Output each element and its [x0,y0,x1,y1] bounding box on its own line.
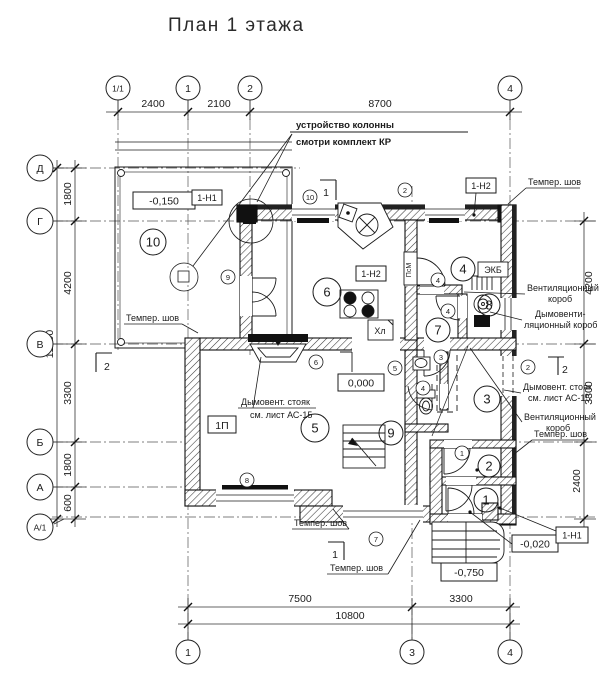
flue-note-right: Дымовент. стояк см. лист АС-15 [504,382,592,403]
window-top-2 [425,204,465,223]
svg-text:3: 3 [483,392,490,407]
svg-text:Темпер. шов: Темпер. шов [294,518,347,528]
svg-text:короб: короб [548,294,572,304]
axis-bubble-top-1-1: 1/1 [106,76,130,100]
room-circle-3: 3 [474,386,500,412]
window-bottom-1 [216,485,294,507]
svg-text:1-Н1: 1-Н1 [197,193,217,203]
tag-ekb: ЭКБ [478,262,508,277]
marker-d6: 6 [309,355,323,369]
svg-text:4: 4 [507,83,513,95]
terrace-double-door-leaf1 [252,278,276,302]
windows [216,204,517,524]
washbasin [413,357,430,370]
svg-text:Темпер. шов: Темпер. шов [330,563,383,573]
svg-text:7: 7 [434,323,441,338]
dim-top-1: 2400 [141,98,165,110]
room-circle-4: 4 [451,257,475,281]
level-terrace: -0,150 [133,192,195,209]
svg-text:см. лист АС-15: см. лист АС-15 [250,410,312,420]
marker-d4b: 4 [441,304,455,318]
future-opening-right [500,356,517,396]
svg-text:смотри комплект КР: смотри комплект КР [296,137,392,148]
svg-text:1/1: 1/1 [112,84,124,94]
svg-text:4: 4 [436,276,440,285]
axis-bubble-bottom-3: 3 [400,640,424,664]
svg-text:2: 2 [403,186,407,195]
svg-text:А: А [36,482,43,494]
svg-text:10: 10 [306,193,314,202]
terrace-double-door-leaf2 [252,292,276,316]
svg-text:1-Н2: 1-Н2 [471,181,491,191]
tag-n1-terrace: 1-Н1 [192,190,222,205]
dim-bottom-1: 7500 [288,593,312,605]
svg-text:1: 1 [482,493,489,508]
svg-text:1-Н1: 1-Н1 [562,531,582,541]
fireplace-flue [248,334,308,362]
section-1-bottom: 1 [328,542,344,561]
svg-text:-0,750: -0,750 [454,567,484,579]
svg-text:4: 4 [421,384,425,393]
vent-duct-note-upper: Вентиляционный короб [464,283,599,304]
tag-fridge: Хл [374,326,385,336]
axis-bubble-left-b: Б [27,429,64,455]
axis-bubble-left-d: Д [27,155,64,181]
seam-note-top-right: Темпер. шов [508,177,581,204]
svg-text:Дымовенти-: Дымовенти- [535,309,586,319]
marker-w8: 8 [240,473,254,487]
svg-text:10: 10 [146,235,160,250]
hob [340,290,378,318]
svg-text:7: 7 [374,535,378,544]
svg-text:Вентиляционный: Вентиляционный [527,283,599,293]
svg-text:ляционный короб: ляционный короб [524,320,597,330]
svg-text:Г: Г [37,216,43,228]
level-ground: 0,000 [338,352,384,391]
axis-bubble-top-2: 2 [238,76,262,100]
page-title: План 1 этажа [168,15,305,36]
svg-text:6: 6 [323,285,330,300]
svg-text:Б: Б [37,437,44,449]
svg-text:В: В [36,339,43,351]
dim-left-1: 1800 [62,182,74,206]
svg-text:1П: 1П [215,420,228,432]
svg-text:А/1: А/1 [34,523,47,533]
kitchen-sink-unit [338,203,393,249]
svg-text:4: 4 [459,262,466,277]
svg-text:4: 4 [507,647,513,659]
floor-plan-drawing: План 1 этажа [0,0,616,689]
dim-left-4: 1800 [62,453,74,477]
svg-text:Темпер. шов: Темпер. шов [528,177,581,187]
marker-d4a: 4 [431,273,445,287]
dim-left-5: 600 [62,494,74,512]
svg-text:4: 4 [446,307,450,316]
svg-text:2: 2 [562,364,568,376]
svg-text:-0,150: -0,150 [149,196,179,208]
marker-w10: 10 [303,190,317,204]
flue-note-room5: Дымовент. стояк см. лист АС-15 [238,357,316,420]
window-right [500,298,517,330]
seam-note-terrace: Темпер. шов [124,313,198,333]
dim-left-2: 4200 [62,271,74,295]
svg-text:3: 3 [439,353,443,362]
room-circle-6: 6 [313,278,341,306]
seam-note-bottom-center: Темпер. шов [327,520,420,574]
section-1-top: 1 [320,180,336,200]
level-porch: -0,750 [441,563,497,581]
svg-text:1: 1 [460,449,464,458]
svg-text:1: 1 [323,187,329,199]
dim-bottom-total: 10800 [335,610,364,622]
svg-text:1-Н2: 1-Н2 [361,269,381,279]
svg-text:0,000: 0,000 [348,378,374,390]
svg-text:Дымовент. стояк: Дымовент. стояк [523,382,592,392]
svg-text:2: 2 [247,83,253,95]
svg-text:8: 8 [245,476,249,485]
svg-text:9: 9 [226,273,230,282]
room-circle-2: 2 [475,455,500,477]
axis-bubble-bottom-4: 4 [498,640,522,664]
svg-text:1: 1 [332,549,338,561]
svg-text:8: 8 [485,298,492,313]
window-top-1 [292,204,335,223]
room-circle-10: 10 [140,229,166,255]
tag-sink-unit: ПсМ [406,263,413,278]
svg-text:5: 5 [393,364,397,373]
axis-bubble-left-v: В [27,331,64,357]
room-circle-8: 8 [478,294,500,316]
floor-plan-sheet: План 1 этажа [0,0,616,689]
axis-bubble-top-1: 1 [176,76,200,100]
dim-left-3: 3300 [62,381,74,405]
marker-w7: 7 [369,532,383,546]
tag-n2-room6: 1-Н2 [356,266,386,281]
marker-d4c: 4 [416,381,430,395]
svg-text:устройство колонны: устройство колонны [296,120,394,131]
svg-text:3: 3 [409,647,415,659]
dim-top-3: 8700 [368,98,392,110]
svg-text:Дымовент. стояк: Дымовент. стояк [241,397,310,407]
column-note: устройство колонны смотри комплект КР [290,120,468,148]
svg-text:ЭКБ: ЭКБ [484,265,502,275]
svg-text:Темпер. шов: Темпер. шов [534,429,587,439]
svg-text:2: 2 [526,363,530,372]
tag-p1: 1П [208,416,236,433]
svg-text:Д: Д [36,163,43,175]
marker-d9: 9 [221,270,235,284]
axis-bubble-bottom-1: 1 [176,640,200,664]
marker-w2r: 2 [521,360,535,374]
svg-text:9: 9 [387,426,394,441]
svg-text:2: 2 [104,361,110,373]
svg-text:см. лист АС-15: см. лист АС-15 [528,393,590,403]
svg-text:Вентиляционный: Вентиляционный [524,412,596,422]
section-2-right: 2 [548,357,568,376]
dim-top-2: 2100 [207,98,231,110]
svg-text:-0,020: -0,020 [520,539,550,551]
svg-text:1: 1 [185,83,191,95]
svg-text:1: 1 [185,647,191,659]
marker-d5: 5 [388,361,402,375]
dim-right-3: 2400 [571,469,583,493]
axis-bubble-left-g: Г [27,208,64,234]
marker-d3: 3 [434,350,448,364]
svg-text:6: 6 [314,358,318,367]
porch-steps [432,522,504,563]
axis-bubble-top-4: 4 [498,76,522,100]
marker-d1: 1 [455,446,469,460]
marker-w2: 2 [398,183,412,197]
svg-text:Темпер. шов: Темпер. шов [126,313,179,323]
section-2-left: 2 [96,353,112,373]
window-bottom-2 [343,505,423,523]
svg-text:5: 5 [311,421,318,436]
svg-text:2: 2 [485,459,492,474]
axis-bubble-left-a: А [27,474,64,500]
dim-bottom-2: 3300 [449,593,473,605]
